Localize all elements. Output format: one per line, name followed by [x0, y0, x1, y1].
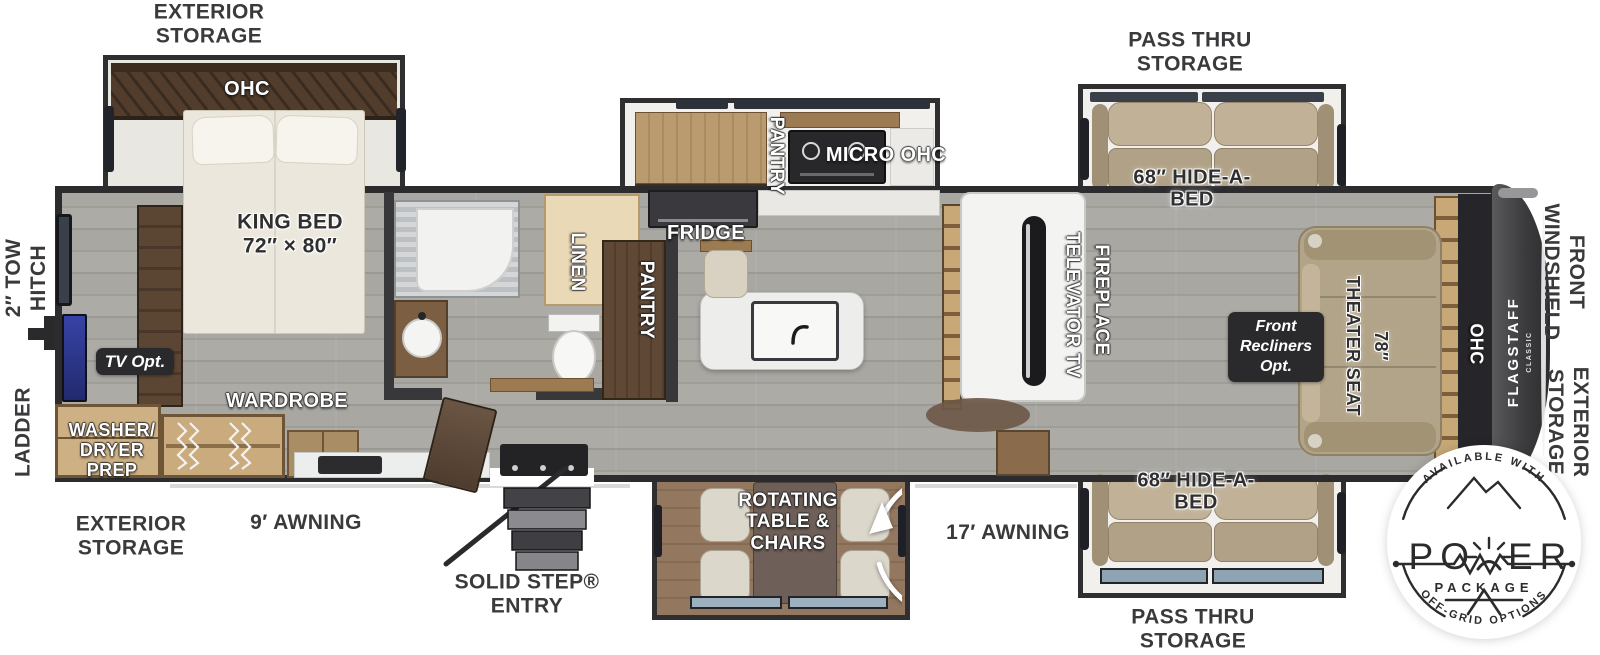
tow-hitch-icon	[28, 328, 46, 340]
label-hide-a-bed-top: 68″ HIDE-A- BED	[1133, 167, 1250, 212]
sofa-back-cushion	[1108, 102, 1212, 146]
label-theater-seat: 78″ THEATER SEAT	[1338, 276, 1394, 416]
label-hide-a-bed-bottom: 68″ HIDE-A- BED	[1137, 470, 1254, 515]
pillow	[275, 115, 359, 166]
side-table	[996, 430, 1050, 476]
pillow	[191, 115, 275, 166]
kitchen-skylight-right	[734, 100, 930, 109]
label-micro-ohc: MICRO OHC	[826, 144, 946, 166]
label-awning-17ft: 17′ AWNING	[946, 521, 1070, 545]
sofa-back-cushion	[1108, 522, 1212, 562]
tv-screen-edge	[1026, 224, 1030, 378]
bath-wall-left	[384, 192, 394, 396]
dinette-side-window	[654, 505, 662, 557]
counter-sink	[318, 456, 382, 474]
shower-pan	[416, 208, 514, 292]
label-fireplace: FIREPLACE	[1090, 244, 1112, 355]
sofa-top-skylight	[1202, 92, 1324, 102]
bedroom-window-left	[104, 106, 114, 172]
sofa-window	[1080, 118, 1089, 180]
bedroom-window-right	[396, 108, 406, 172]
sofa-bottom-window	[1100, 568, 1208, 584]
burner-icon	[802, 142, 820, 160]
label-pantry-slide: PANTRY	[765, 117, 787, 195]
power-package-badge-art: AVAILABLE WITH PO ER PACKAGE OFF-GRID OP…	[1384, 442, 1584, 642]
solid-step-stairs	[438, 452, 613, 587]
label-rotating-table: ROTATING TABLE & CHAIRS	[738, 490, 838, 554]
sofa-window	[1337, 492, 1346, 554]
tv-screen-slot	[1022, 216, 1046, 386]
flagstaff-logo: FLAGSTAFF	[1505, 297, 1523, 408]
power-package-badge: AVAILABLE WITH PO ER PACKAGE OFF-GRID OP…	[1384, 442, 1584, 642]
sofa-bottom-window	[1212, 568, 1324, 584]
badge-power-left: PO	[1409, 536, 1476, 577]
label-fridge: FRIDGE	[667, 222, 745, 244]
label-front-recliners-opt: Front Recliners Opt.	[1228, 312, 1324, 382]
flagstaff-classic-logo: CLASSIC	[1526, 331, 1534, 372]
label-king-bed: KING BED 72″ × 80″	[237, 210, 343, 257]
tow-hitch-icon	[44, 316, 58, 350]
kitchen-island	[700, 292, 864, 370]
rear-wardrobe-cabinet	[137, 205, 183, 407]
shower	[394, 200, 520, 298]
sofa-window	[1337, 124, 1346, 186]
label-wardrobe: WARDROBE	[226, 390, 348, 412]
label-exterior-storage-bottom-left: EXTERIOR STORAGE	[76, 512, 187, 559]
island-stool	[704, 250, 748, 298]
hanger-wardrobe	[161, 414, 285, 478]
label-ohc-bedroom: OHC	[224, 78, 270, 100]
label-ohc-front: OHC	[1465, 323, 1486, 364]
faucet-icon	[789, 319, 813, 345]
sofa-arm	[1092, 104, 1108, 190]
bath-vanity	[394, 300, 448, 378]
theater-armrest	[1304, 230, 1436, 260]
awning-line-17ft	[915, 484, 1077, 488]
entertainment-shelf	[942, 204, 962, 410]
rear-window	[56, 214, 72, 306]
vanity-sink	[402, 318, 442, 358]
cupholder-icon	[1308, 434, 1322, 448]
sofa-arm	[1318, 474, 1334, 566]
label-pantry-bath: PANTRY	[635, 261, 657, 339]
badge-package: PACKAGE	[1434, 580, 1533, 595]
sofa-window	[1080, 488, 1089, 550]
sofa-back-cushion	[1214, 102, 1318, 146]
label-televator-tv: TELEVATOR TV	[1061, 232, 1083, 378]
label-washer-dryer-prep: WASHER/ DRYER PREP	[69, 420, 156, 480]
label-pass-thru-storage-top: PASS THRU STORAGE	[1128, 28, 1251, 75]
pantry-cabinet-slide	[635, 112, 767, 184]
label-solid-step-entry: SOLID STEP® ENTRY	[455, 570, 600, 617]
cap-roof-band	[1498, 188, 1538, 198]
rug	[926, 398, 1030, 432]
cupholder-icon	[1308, 234, 1322, 248]
entry-shelf	[490, 378, 594, 392]
toilet-bowl	[552, 330, 596, 384]
sofa-top-skylight	[1090, 92, 1198, 102]
label-ladder: LADDER	[12, 387, 37, 477]
sofa-back-cushion	[1214, 522, 1318, 562]
label-tow-hitch: 2″ TOW HITCH	[2, 239, 52, 318]
label-pass-thru-storage-bottom: PASS THRU STORAGE	[1131, 605, 1254, 652]
faucet-icon	[418, 312, 426, 320]
label-linen: LINEN	[566, 233, 588, 292]
label-front-windshield: FRONT WINDSHIELD	[1538, 204, 1588, 341]
hangers-icon	[164, 417, 282, 475]
sofa-arm	[1318, 104, 1334, 190]
label-awning-9ft: 9′ AWNING	[250, 511, 362, 535]
stove-handle	[800, 173, 874, 176]
kitchen-shelf	[780, 112, 900, 128]
bath-wall-bottom-left	[384, 388, 442, 400]
label-tv-opt: TV Opt.	[96, 348, 174, 375]
tv-optional	[62, 314, 87, 402]
badge-power-right: ER	[1508, 536, 1573, 577]
rv-floorplan: FLAGSTAFF CLASSIC	[0, 0, 1600, 655]
kitchen-skylight-left	[676, 100, 728, 109]
sofa-arm	[1092, 474, 1108, 566]
label-exterior-storage-top: EXTERIOR STORAGE	[154, 0, 265, 47]
